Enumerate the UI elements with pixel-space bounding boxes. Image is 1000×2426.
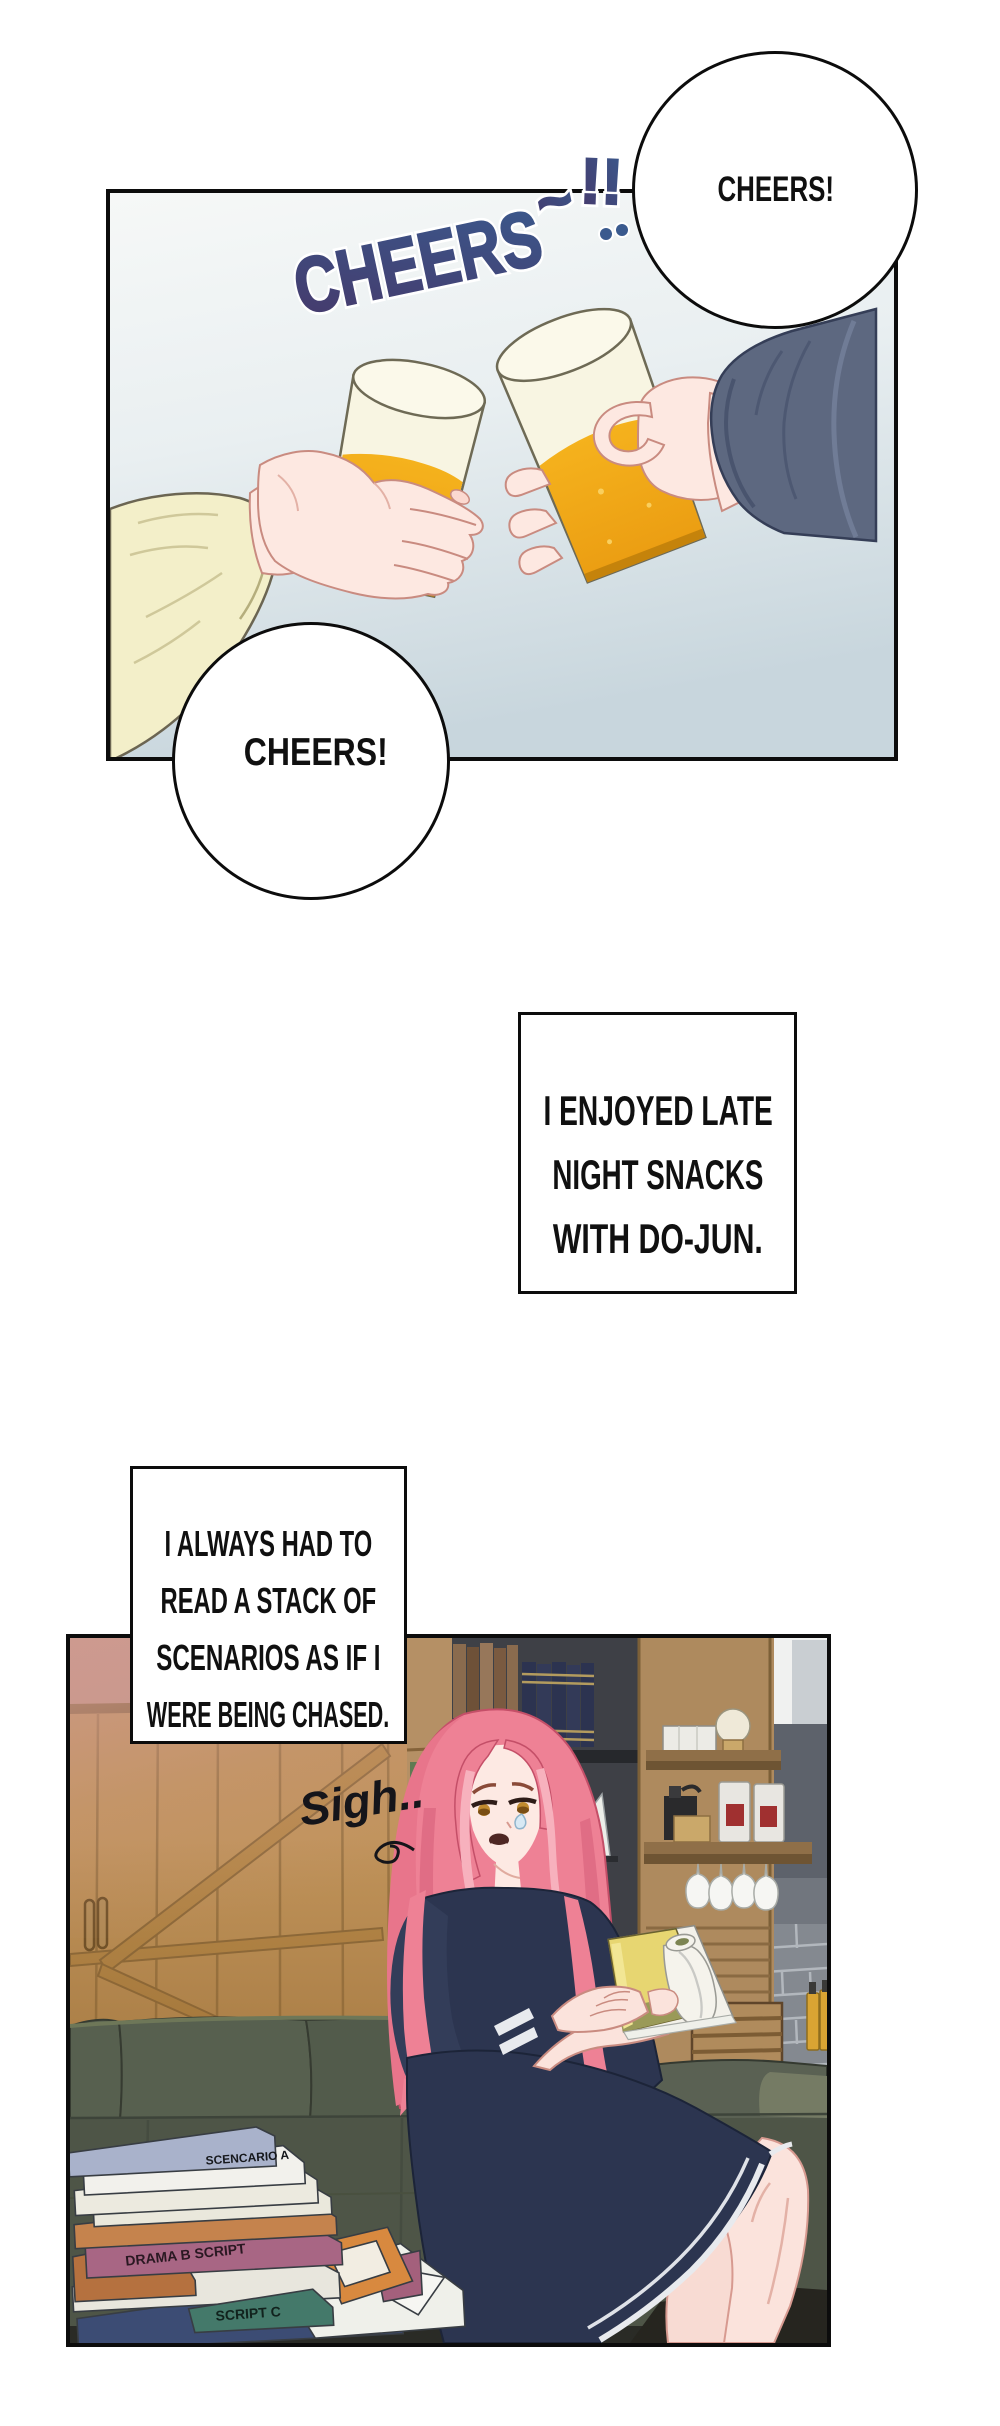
- svg-text:CHEERS: CHEERS: [286, 193, 549, 330]
